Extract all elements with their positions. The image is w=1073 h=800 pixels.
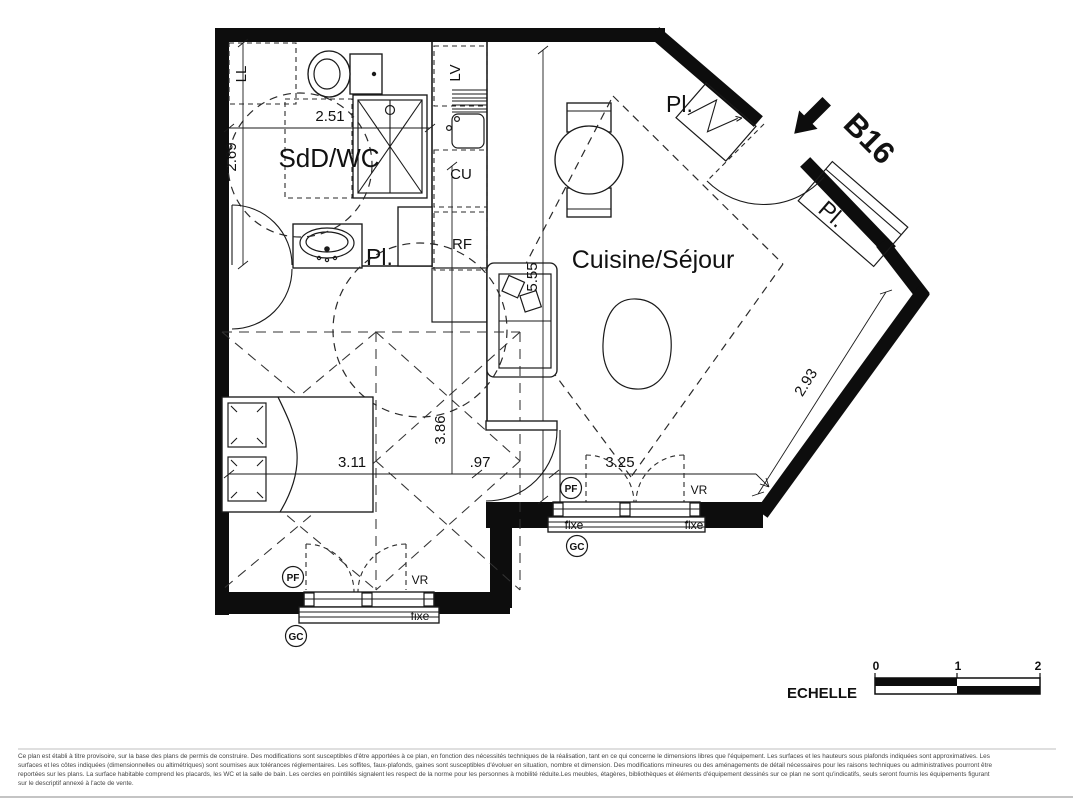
window-bedroom: PF VR fixe GC — [283, 544, 440, 647]
wall-step-right — [886, 248, 920, 292]
sofa — [487, 263, 557, 377]
dim-living-diagonal: 2.93 — [791, 366, 821, 400]
bathroom-closet — [398, 207, 432, 266]
gc-label: GC — [570, 542, 585, 553]
pf-label: PF — [565, 484, 578, 495]
window-leaf-arc — [358, 544, 406, 592]
dim-bathroom-depth: 2.69 — [223, 142, 240, 171]
window-leaf-arc — [636, 455, 684, 503]
scale-label: ECHELLE — [787, 685, 857, 702]
scale-bar: ECHELLE 0 1 2 — [787, 659, 1042, 702]
dim-passage: .97 — [470, 454, 491, 471]
bathroom-door-arc-2 — [232, 269, 292, 329]
diagonal-dimension: 2.93 — [752, 290, 892, 496]
dining-table-set — [555, 103, 623, 217]
scale-tick-2: 2 — [1035, 659, 1042, 673]
footer-line-1: Ce plan est établi à titre provisoire, s… — [18, 753, 990, 760]
footer-line-4: sur le descriptif annexé à l'acte de ven… — [18, 780, 134, 787]
dim-bathroom-width: 2.51 — [315, 108, 344, 125]
dim-bedroom-width: 3.11 — [338, 454, 366, 471]
kitchen-strip: LV CU RF — [432, 46, 487, 322]
sofa-body — [487, 263, 557, 377]
entrance-arrow-icon — [785, 92, 836, 143]
bathroom-label: SdD/WC — [278, 143, 379, 173]
drainboard-lines — [452, 90, 487, 112]
washbasin — [293, 224, 362, 268]
dim-room-depth: 3.86 — [432, 415, 449, 444]
accessibility-circle-corridor — [333, 243, 507, 417]
footer: Ce plan est établi à titre provisoire, s… — [0, 749, 1073, 797]
gc-label: GC — [289, 632, 304, 643]
unit-label: B16 — [837, 106, 902, 171]
pf-label: PF — [287, 573, 300, 584]
scale-bar-seg-2 — [957, 686, 1040, 694]
living-room: Cuisine/Séjour 5.55 — [487, 46, 783, 504]
toilet — [308, 51, 382, 97]
rug — [603, 299, 671, 389]
sink-tap-1 — [447, 126, 452, 131]
diamond-edge — [631, 264, 783, 477]
toilet-button — [372, 72, 376, 76]
round-table — [555, 126, 623, 194]
dim-living-length: 5.55 — [524, 262, 541, 291]
fixe-label: fixe — [411, 609, 430, 623]
entrance-closet-label: Pl. — [666, 91, 693, 117]
kitchen-return-cabinet — [432, 268, 487, 322]
fridge-label: RF — [452, 236, 472, 253]
laundry-label: LL — [233, 66, 250, 83]
floor-plan-page: LL Pl. — [0, 0, 1073, 800]
bathroom: LL Pl. — [223, 39, 435, 329]
vr-label: VR — [691, 483, 708, 497]
toilet-tank — [350, 54, 382, 94]
cooktop-label: CU — [450, 166, 472, 183]
dishwasher-label: LV — [447, 64, 464, 81]
dim-tick — [880, 290, 892, 294]
footer-line-3: reportées sur les plans. La surface habi… — [18, 771, 990, 778]
bedroom-door — [486, 421, 557, 501]
wall-diag-southeast — [766, 296, 920, 508]
sink-tap-2 — [455, 117, 460, 122]
floor-plan-svg: LL Pl. — [0, 0, 1073, 800]
bedroom-door-leaf — [486, 421, 557, 430]
fixe-label: fixe — [565, 518, 584, 532]
kitchen-sink — [452, 114, 484, 148]
fixe-label: fixe — [685, 518, 704, 532]
dim-tick — [752, 492, 764, 496]
washbasin-drain — [324, 246, 330, 252]
scale-bar-seg-1 — [875, 678, 957, 686]
bathroom-closet-label: Pl. — [366, 244, 393, 270]
dim-line-293 — [758, 292, 886, 494]
scale-tick-0: 0 — [873, 659, 880, 673]
living-label: Cuisine/Séjour — [572, 246, 735, 274]
footer-line-2: surfaces et les côtes indiquées (dimensi… — [18, 762, 993, 769]
scale-tick-1: 1 — [955, 659, 962, 673]
vr-label: VR — [412, 573, 429, 587]
